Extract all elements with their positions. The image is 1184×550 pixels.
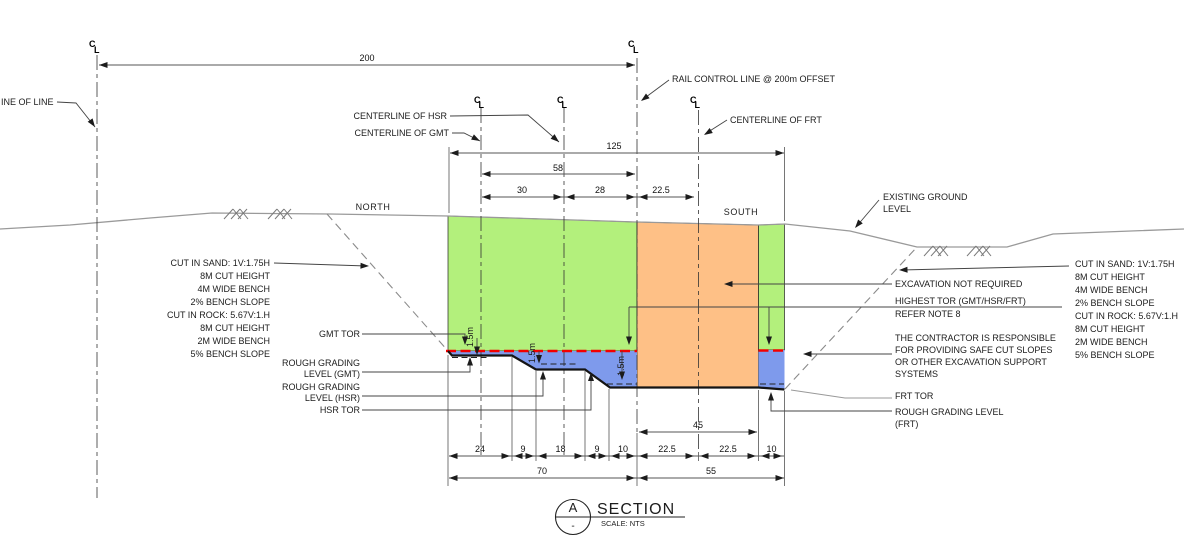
depth-marker-1: 1.5m <box>465 327 475 347</box>
note-right-line: 5% BENCH SLOPE <box>1075 350 1155 360</box>
centerline-symbol: C L <box>557 95 568 110</box>
section-marker-sheet: - <box>571 521 574 532</box>
label-centerline-frt: CENTERLINE OF FRT <box>730 115 822 125</box>
label-rough-grading-frt-2: (FRT) <box>895 419 918 429</box>
label-contractor-1: THE CONTRACTOR IS RESPONSIBLE <box>895 333 1056 343</box>
dim-70: 70 <box>537 466 547 476</box>
rough-grading-gmt-leader <box>362 359 470 372</box>
centerline-symbol: C L <box>690 95 701 110</box>
centerline-symbol: C L <box>89 39 100 55</box>
label-rough-grading-hsr-2: LEVEL (HSR) <box>305 393 360 403</box>
dim-125: 125 <box>606 141 621 151</box>
label-existing-ground-2: LEVEL <box>883 204 911 214</box>
cut-note-right-leader <box>901 266 1069 270</box>
notes-right-block: CUT IN SAND: 1V:1.75H 8M CUT HEIGHT 4M W… <box>1075 259 1178 360</box>
label-north: NORTH <box>356 202 391 212</box>
hsr-tor-leader <box>362 374 591 410</box>
label-contractor-3: OR OTHER EXCAVATION SUPPORT <box>895 357 1047 367</box>
dim-55: 55 <box>706 466 716 476</box>
label-rough-grading-hsr-1: ROUGH GRADING <box>282 382 360 392</box>
rough-grading-frt-leader <box>771 394 892 411</box>
cl-symbol-icon: L <box>633 45 639 55</box>
rough-grading-hsr-leader <box>362 373 543 397</box>
rock-excavation-fill <box>637 222 759 388</box>
drawing-canvas: C L C L C L C L C L 200 125 58 30 28 22.… <box>0 0 1184 550</box>
label-highest-tor-1: HIGHEST TOR (GMT/HSR/FRT) <box>895 296 1026 306</box>
note-left-line: 8M CUT HEIGHT <box>200 323 270 333</box>
dim-30: 30 <box>517 185 527 195</box>
label-contractor-2: FOR PROVIDING SAFE CUT SLOPES <box>895 345 1052 355</box>
label-centerline-hsr: CENTERLINE OF HSR <box>353 111 447 121</box>
label-rough-grading-gmt-2: LEVEL (GMT) <box>304 369 360 379</box>
note-right-line: 8M CUT HEIGHT <box>1075 272 1145 282</box>
label-excavation-not-required: EXCAVATION NOT REQUIRED <box>895 279 1023 289</box>
note-right-line: 4M WIDE BENCH <box>1075 285 1148 295</box>
dim-10a: 10 <box>618 444 628 454</box>
centerline-symbol: C L <box>474 95 485 110</box>
dim-10b: 10 <box>766 444 776 454</box>
cl-symbol-icon: L <box>479 100 485 110</box>
sand-cut-left-fill <box>448 216 637 351</box>
centerline-symbols: C L C L C L C L C L <box>89 39 701 110</box>
section-title: SECTION <box>597 501 675 518</box>
dim-28: 28 <box>595 185 605 195</box>
label-highest-tor-2: REFER NOTE 8 <box>895 309 961 319</box>
label-south: SOUTH <box>724 207 759 217</box>
note-left-line: 4M WIDE BENCH <box>197 284 270 294</box>
dim-22-5a: 22.5 <box>658 444 676 454</box>
dim-200: 200 <box>359 53 374 63</box>
dim-9b: 9 <box>594 444 599 454</box>
label-hsr-tor: HSR TOR <box>320 405 361 415</box>
note-left-line: 2M WIDE BENCH <box>197 336 270 346</box>
notes-left-block: CUT IN SAND: 1V:1.75H 8M CUT HEIGHT 4M W… <box>167 258 271 359</box>
label-line-of-line: INE OF LINE <box>1 97 54 107</box>
label-existing-ground-1: EXISTING GROUND <box>883 192 968 202</box>
cut-note-left-leader <box>274 263 367 266</box>
section-marker-letter: A <box>569 500 578 515</box>
depth-marker-3: 1.5m <box>616 356 626 376</box>
cl-symbol-icon: L <box>562 100 568 110</box>
dim-18: 18 <box>555 444 565 454</box>
dim-58: 58 <box>553 163 563 173</box>
frt-tor-leader <box>791 390 892 398</box>
section-drawing: C L C L C L C L C L 200 125 58 30 28 22.… <box>0 0 1184 550</box>
note-left-line: CUT IN ROCK: 5.67V:1.H <box>167 310 270 320</box>
below-tor-right-fill <box>759 350 785 389</box>
cl-symbol-icon: L <box>695 100 701 110</box>
dim-24: 24 <box>475 444 485 454</box>
centerline-hsr-leader <box>450 115 559 142</box>
centerline-symbol: C L <box>628 39 639 55</box>
note-right-line: CUT IN SAND: 1V:1.75H <box>1075 259 1175 269</box>
dim-9a: 9 <box>520 444 525 454</box>
note-right-line: CUT IN ROCK: 5.67V:1.H <box>1075 311 1178 321</box>
note-right-line: 2% BENCH SLOPE <box>1075 298 1155 308</box>
label-contractor-4: SYSTEMS <box>895 369 938 379</box>
note-right-line: 8M CUT HEIGHT <box>1075 324 1145 334</box>
depth-marker-2: 1.5m <box>527 343 537 363</box>
section-scale: SCALE: NTS <box>601 519 645 528</box>
note-left-line: 5% BENCH SLOPE <box>190 349 270 359</box>
dim-22-5b: 22.5 <box>719 444 737 454</box>
line-of-line-leader <box>57 102 95 127</box>
sand-cut-right-fill <box>759 224 785 350</box>
label-rough-grading-gmt-1: ROUGH GRADING <box>282 358 360 368</box>
note-right-line: 2M WIDE BENCH <box>1075 337 1148 347</box>
label-centerline-gmt: CENTERLINE OF GMT <box>354 128 449 138</box>
label-rough-grading-frt-1: ROUGH GRADING LEVEL <box>895 407 1004 417</box>
cl-symbol-icon: L <box>94 45 100 55</box>
note-left-line: 2% BENCH SLOPE <box>190 297 270 307</box>
label-gmt-tor: GMT TOR <box>319 329 361 339</box>
label-rail-control-line: RAIL CONTROL LINE @ 200m OFFSET <box>672 74 836 84</box>
dim-45: 45 <box>693 420 703 430</box>
section-title-block: A - SECTION SCALE: NTS <box>556 500 686 535</box>
note-left-line: CUT IN SAND: 1V:1.75H <box>170 258 270 268</box>
note-left-line: 8M CUT HEIGHT <box>200 271 270 281</box>
label-frt-tor: FRT TOR <box>895 391 934 401</box>
dim-22-5-top: 22.5 <box>652 185 670 195</box>
